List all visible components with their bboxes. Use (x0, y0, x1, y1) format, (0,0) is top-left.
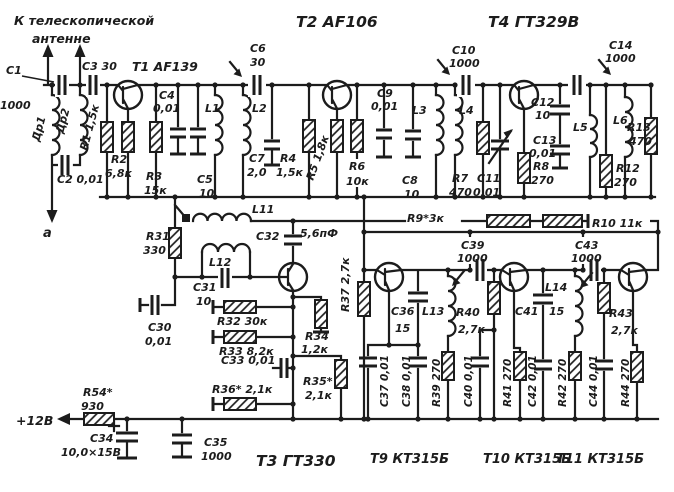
resistor-r33 (224, 331, 256, 343)
label-r54-val: 930 (81, 400, 104, 413)
resistor-r6 (351, 120, 363, 152)
resistor-r10 (543, 215, 582, 227)
label-l11: L11 (252, 203, 274, 216)
resistor-r39 (442, 352, 454, 380)
label-t4: Т4 ГТ329В (488, 13, 579, 31)
label-l13: L13 (422, 305, 445, 318)
label-c1-val: 1000 (0, 99, 31, 112)
label-c43-ref: С43 (575, 239, 599, 252)
label-l3: L3 (412, 104, 427, 117)
label-r4-val: 1,5к (276, 166, 303, 179)
label-c2: С2 0,01 (57, 173, 104, 186)
label-r43-ref: R43 (609, 307, 633, 320)
label-r42: R42 270 (557, 359, 569, 407)
resistor-r44 (631, 352, 643, 382)
label-t1: Т1 AF139 (132, 59, 198, 74)
label-c3: С3 30 (82, 60, 117, 73)
schematic-page: К телескопической антенне а +12В Т1 AF13… (0, 0, 674, 492)
resistor-r36 (224, 398, 256, 410)
label-c8-ref: С8 (402, 174, 418, 187)
label-c31-ref: С31 (193, 281, 216, 294)
label-c9-ref: С9 (377, 87, 393, 100)
label-c35-val: 1000 (201, 450, 232, 463)
label-r3-ref: R3 (146, 170, 162, 183)
label-c13-ref: С13 (533, 134, 557, 147)
label-t3: Т3 ГТ330 (256, 452, 336, 470)
label-c4-ref: С4 (159, 89, 175, 102)
terminal-a-arrow-icon (47, 210, 58, 223)
label-c40: С40 0,01 (463, 355, 475, 407)
label-l14: L14 (545, 281, 567, 294)
resistor-r5 (331, 120, 343, 152)
resistor-r32 (224, 301, 256, 313)
label-r36: R36* 2,1к (212, 383, 273, 396)
label-c14-val: 1000 (605, 52, 636, 65)
label-c44: С44 0,01 (588, 355, 600, 407)
label-c1-ref: С1 (6, 64, 22, 77)
resistor-r54 (84, 413, 114, 425)
label-r13-val: 470 (628, 135, 652, 148)
resistor-r37 (358, 282, 370, 316)
label-c5-ref: С5 (197, 173, 213, 186)
label-r6-val: 10к (346, 175, 369, 188)
label-c12-ref: С12 (531, 96, 555, 109)
transistor-t10-symbol (500, 263, 528, 291)
coil-l3 (436, 95, 444, 155)
label-r35-val: 2,1к (305, 389, 332, 402)
label-r7-ref: R7 (452, 172, 468, 185)
label-c4-val: 0,01 (153, 102, 180, 115)
coil-l2 (243, 95, 251, 155)
label-l12: L12 (209, 256, 232, 269)
label-r13-ref: R13 (627, 121, 651, 134)
label-r40-ref: R40 (456, 306, 480, 319)
label-c32-ref: С32 (256, 230, 280, 243)
coil-l5 (590, 115, 597, 157)
antenna-label-line2: антенне (32, 31, 91, 46)
label-c11-val: 0,01 (473, 186, 500, 199)
label-c39-val: 1000 (457, 252, 488, 265)
label-c12-val: 10 (535, 109, 551, 122)
label-c6-val: 30 (250, 56, 266, 69)
label-c10-ref: С10 (452, 44, 476, 57)
resistor-r1 (101, 122, 113, 152)
label-r12-val: 270 (614, 176, 637, 189)
label-r34-val: 1,2к (301, 343, 328, 356)
label-c43-val: 1000 (571, 252, 602, 265)
power-arrow-icon (57, 413, 70, 425)
label-l2: L2 (252, 102, 267, 115)
label-c13-val: 0,01 (529, 147, 556, 160)
label-c11-ref: С11 (477, 172, 500, 185)
label-c37: С37 0,01 (379, 355, 391, 407)
terminal-a-label: а (43, 226, 52, 241)
transistor-t2-symbol (323, 81, 351, 109)
label-c42: С42 0,01 (527, 355, 539, 407)
label-r2-val: 6,8к (105, 167, 132, 180)
label-c10-val: 1000 (449, 57, 480, 70)
label-t11: Т11 КТ315Б (556, 452, 644, 467)
resistor-r31 (169, 228, 181, 258)
label-r40-val: 2,7к (458, 323, 485, 336)
label-c30-val: 0,01 (145, 335, 172, 348)
label-r31-ref: R31 (146, 230, 170, 243)
label-r35-ref: R35* (303, 375, 333, 388)
label-r8-val: 270 (531, 174, 554, 187)
label-c41-ref: С41 (515, 305, 538, 318)
label-r54-ref: R54* (83, 386, 113, 399)
label-r6-ref: R6 (349, 160, 365, 173)
label-r12-ref: R12 (616, 162, 640, 175)
label-r3-val: 15к (144, 184, 167, 197)
label-r10: R10 11к (592, 217, 643, 230)
label-r43-val: 2,7к (611, 324, 638, 337)
label-r37: R37 2,7к (339, 257, 352, 312)
label-c34-val: 10,0×15В (61, 446, 121, 459)
label-r44: R44 270 (620, 359, 632, 407)
label-c7-ref: С7 (249, 152, 265, 165)
resistor-r4 (303, 120, 315, 152)
transistor-t11-symbol (619, 263, 647, 291)
label-l1: L1 (205, 102, 220, 115)
label-r9: R9*3к (407, 212, 445, 225)
label-c6-ref: С6 (250, 42, 266, 55)
label-t2: Т2 AF106 (296, 13, 378, 31)
label-r31-val: 330 (143, 244, 166, 257)
resistor-r3 (150, 122, 162, 152)
label-c9-val: 0,01 (371, 100, 398, 113)
label-c34-ref: С34 (90, 432, 113, 445)
label-r2-ref: R2 (111, 153, 127, 166)
label-r41: R41 270 (502, 359, 514, 407)
schematic-canvas: К телескопической антенне а +12В Т1 AF13… (0, 0, 674, 492)
resistor-r7 (477, 122, 489, 154)
label-l5: L5 (573, 121, 588, 134)
label-c38: С38 0,01 (401, 355, 413, 407)
label-c32-val: 5,6пФ (300, 227, 338, 240)
resistor-r12 (600, 155, 612, 187)
label-c39-ref: С39 (461, 239, 485, 252)
label-c8-val: 10 (404, 188, 420, 201)
transistor-t3-symbol (279, 263, 307, 291)
resistor-r35 (335, 360, 347, 388)
transistor-t9-symbol (375, 263, 403, 291)
coil-l11 (193, 214, 251, 221)
label-c41-val: 15 (549, 305, 565, 318)
label-r32: R32 30к (217, 315, 268, 328)
label-c30-ref: С30 (148, 321, 172, 334)
label-r4-ref: R4 (280, 152, 296, 165)
label-c5-val: 10 (199, 187, 215, 200)
resistor-r40 (488, 282, 500, 314)
label-r34-ref: R34 (305, 330, 329, 343)
label-t9: Т9 КТ315Б (370, 452, 449, 467)
label-c33: С33 0,01 (221, 354, 275, 367)
resistor-r42 (569, 352, 581, 380)
antenna-label-line1: К телескопической (14, 13, 154, 28)
l11-tap-square (182, 214, 190, 222)
label-c36-val: 15 (395, 322, 411, 335)
label-l6: L6 (613, 114, 628, 127)
label-r7-val: 470 (448, 186, 472, 199)
resistor-r34 (315, 300, 327, 328)
resistor-r41 (514, 352, 526, 380)
label-c36-ref: С36 (391, 305, 415, 318)
transistor-t1-symbol (114, 81, 142, 109)
label-dr1: Др1 (29, 115, 48, 144)
label-r39: R39 270 (431, 359, 443, 407)
coil-l12 (202, 244, 250, 252)
label-c35-ref: С35 (204, 436, 228, 449)
resistor-r2 (122, 122, 134, 152)
c1-pointer-line (22, 76, 54, 82)
power-label: +12В (16, 413, 53, 428)
label-c14-ref: С14 (609, 39, 632, 52)
resistor-r9 (487, 215, 530, 227)
label-l4: L4 (459, 104, 474, 117)
label-c31-val: 10 (196, 295, 212, 308)
label-r8-ref: R8 (533, 160, 549, 173)
label-c7-val: 2,0 (247, 166, 267, 179)
